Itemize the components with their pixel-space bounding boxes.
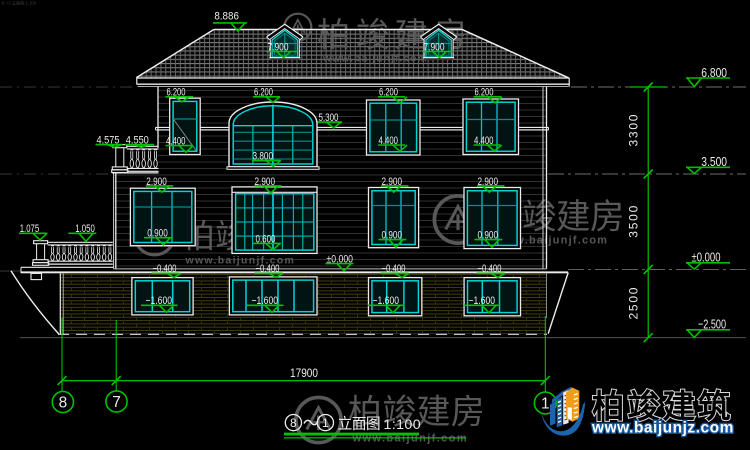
svg-text:3500: 3500	[627, 205, 641, 237]
svg-text:2500: 2500	[627, 287, 641, 319]
svg-text:立面图: 立面图	[338, 416, 381, 433]
svg-text:8: 8	[59, 395, 68, 412]
svg-text:www.baijunjf.com: www.baijunjf.com	[322, 52, 428, 64]
svg-text:17900: 17900	[290, 368, 318, 380]
svg-text:3300: 3300	[627, 114, 641, 146]
svg-text:www.baijunjz.com: www.baijunjz.com	[591, 419, 734, 436]
svg-text:1: 1	[541, 396, 550, 413]
svg-text:8.886: 8.886	[214, 11, 239, 23]
svg-text:8: 8	[290, 416, 297, 430]
svg-text:1: 1	[322, 416, 329, 430]
svg-text:7: 7	[112, 394, 121, 411]
svg-text:1:100: 1:100	[384, 417, 422, 433]
